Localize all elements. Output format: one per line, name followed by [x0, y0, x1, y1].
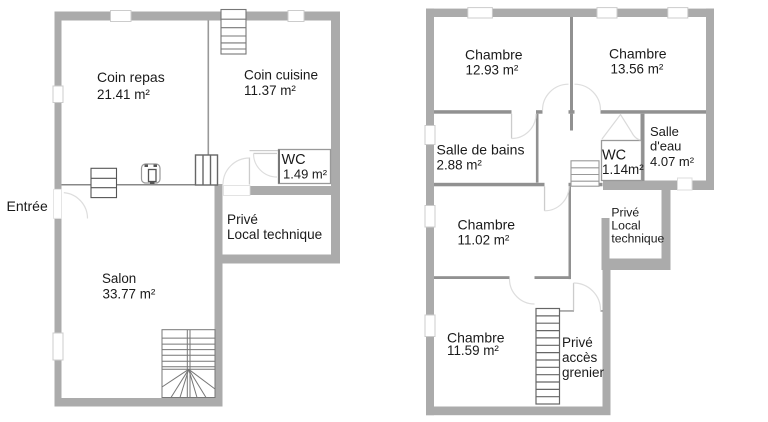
svg-text:11.37 m²: 11.37 m²	[244, 83, 296, 98]
svg-text:11.59 m²: 11.59 m²	[447, 343, 499, 358]
svg-text:Entrée: Entrée	[7, 198, 48, 214]
svg-text:1.14m²: 1.14m²	[602, 162, 644, 177]
svg-text:grenier: grenier	[562, 365, 605, 380]
svg-text:13.56 m²: 13.56 m²	[611, 62, 664, 77]
svg-text:Salle: Salle	[650, 124, 679, 139]
svg-text:Local technique: Local technique	[227, 227, 322, 242]
svg-text:4.07 m²: 4.07 m²	[650, 154, 695, 169]
svg-text:11.02 m²: 11.02 m²	[458, 233, 510, 248]
svg-text:d'eau: d'eau	[650, 139, 681, 154]
svg-text:Chambre: Chambre	[609, 46, 667, 62]
svg-text:Salon: Salon	[102, 271, 136, 286]
svg-text:33.77 m²: 33.77 m²	[103, 287, 156, 302]
svg-text:Privé: Privé	[611, 205, 639, 219]
svg-text:accès: accès	[562, 350, 598, 365]
svg-text:Chambre: Chambre	[465, 47, 523, 63]
svg-text:2.88 m²: 2.88 m²	[437, 157, 483, 172]
svg-text:12.93 m²: 12.93 m²	[466, 62, 519, 77]
svg-text:Coin cuisine: Coin cuisine	[244, 67, 318, 82]
svg-text:1.49 m²: 1.49 m²	[283, 167, 328, 182]
svg-text:21.41 m²: 21.41 m²	[97, 87, 150, 102]
svg-text:technique: technique	[611, 232, 664, 246]
svg-text:Privé: Privé	[562, 335, 593, 350]
svg-text:Chambre: Chambre	[458, 216, 516, 232]
svg-text:Coin repas: Coin repas	[97, 69, 165, 85]
svg-text:Privé: Privé	[227, 212, 258, 227]
svg-text:Salle de bains: Salle de bains	[437, 142, 525, 158]
